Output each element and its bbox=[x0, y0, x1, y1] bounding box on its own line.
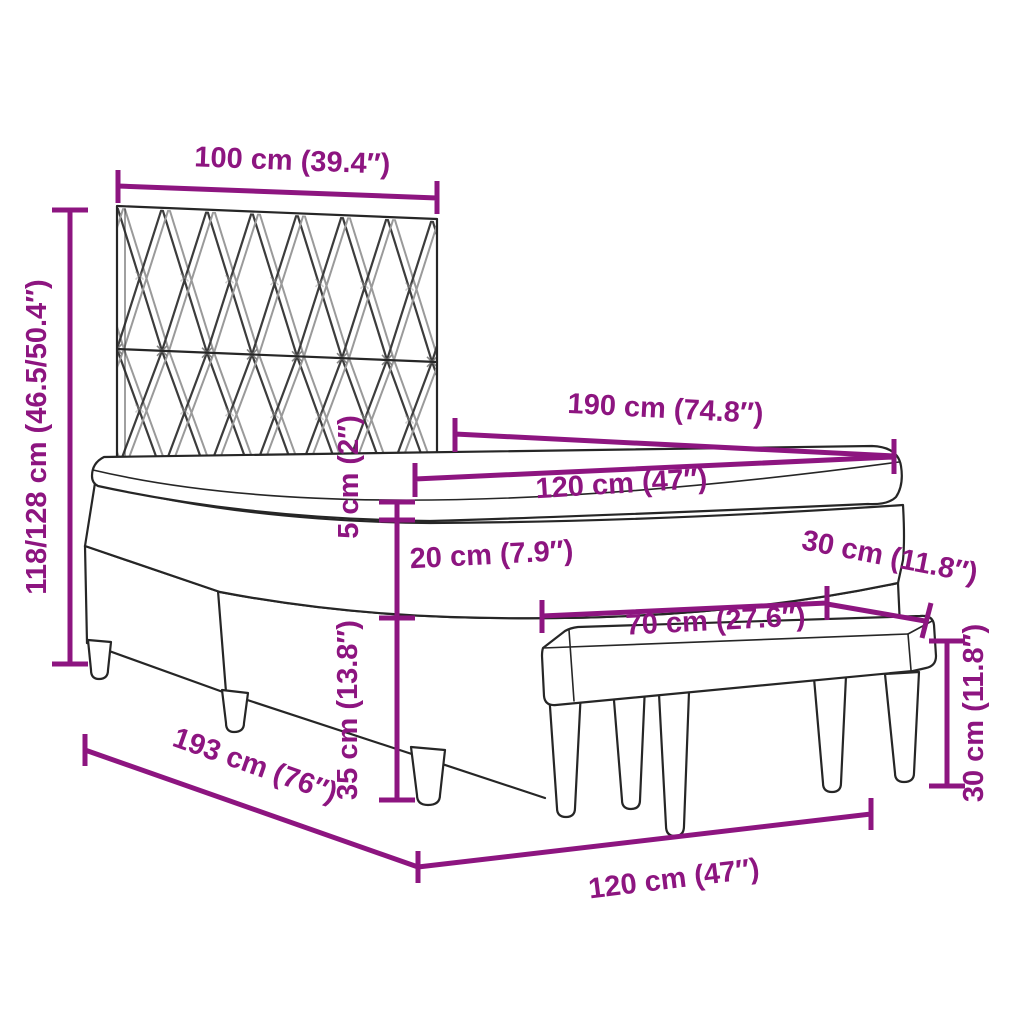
bench-leg bbox=[659, 692, 689, 836]
headboard-pattern-line bbox=[439, 219, 484, 364]
dim-bed-width-line bbox=[418, 798, 871, 867]
dim-headboard-width-label: 100 cm (39.4″) bbox=[194, 141, 391, 181]
dim-total-height-label: 118/128 cm (46.5/50.4″) bbox=[21, 279, 53, 594]
headboard-pattern-line bbox=[451, 284, 459, 292]
dim-topper-height-label: 5 cm (2″) bbox=[333, 415, 365, 539]
bed-leg bbox=[88, 640, 111, 679]
headboard-pattern-line bbox=[451, 284, 459, 292]
headboard-pattern-line bbox=[439, 221, 484, 362]
bed-leg bbox=[411, 747, 445, 805]
headboard-pattern-line bbox=[432, 219, 477, 364]
bench-leg bbox=[885, 672, 919, 782]
headboard-pattern-line bbox=[72, 349, 117, 469]
dim-base-length-label: 193 cm (76″) bbox=[169, 722, 342, 810]
dim-total-height-line bbox=[52, 210, 88, 664]
headboard-pattern-line bbox=[432, 221, 477, 362]
bed-dimension-diagram: 100 cm (39.4″) 118/128 cm (46.5/50.4″) 1… bbox=[0, 0, 1024, 1024]
headboard-pattern-line bbox=[477, 221, 522, 366]
headboard-pattern-line bbox=[484, 221, 529, 366]
headboard-pattern-line bbox=[72, 206, 117, 347]
dim-base-height-label: 35 cm (13.8″) bbox=[332, 620, 364, 800]
headboard-pattern-line bbox=[72, 204, 117, 349]
bench-leg bbox=[814, 676, 846, 792]
headboard-pattern-line bbox=[72, 347, 117, 471]
dim-bed-width-label: 120 cm (47″) bbox=[587, 853, 762, 906]
dim-mattress-length-label: 190 cm (74.8″) bbox=[567, 388, 764, 430]
dim-bench-height-label: 30 cm (11.8″) bbox=[958, 624, 990, 802]
diagram-canvas: 100 cm (39.4″) 118/128 cm (46.5/50.4″) 1… bbox=[0, 0, 1024, 1024]
bed-leg bbox=[222, 690, 248, 732]
